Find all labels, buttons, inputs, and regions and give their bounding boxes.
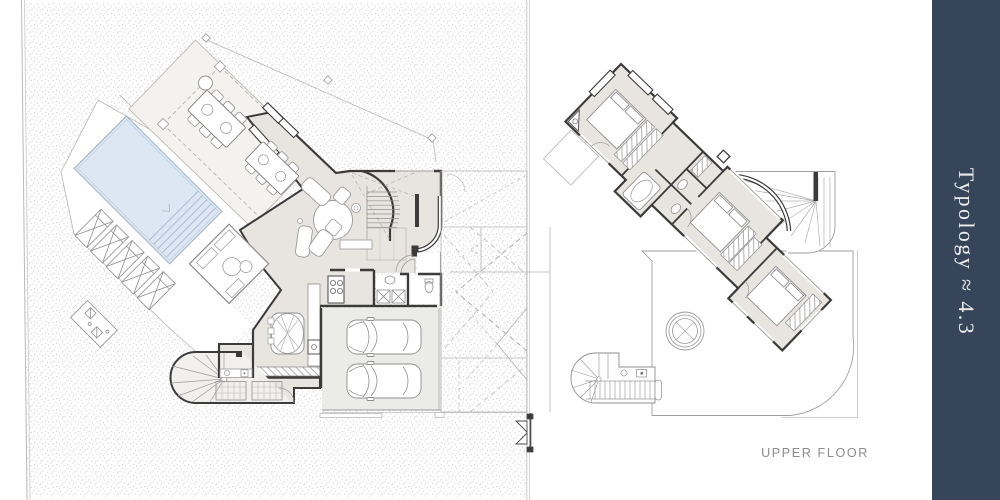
svg-text:Typology ≈ 4.3: Typology ≈ 4.3 [954, 168, 979, 336]
svg-text:UPPER FLOOR: UPPER FLOOR [761, 446, 869, 460]
